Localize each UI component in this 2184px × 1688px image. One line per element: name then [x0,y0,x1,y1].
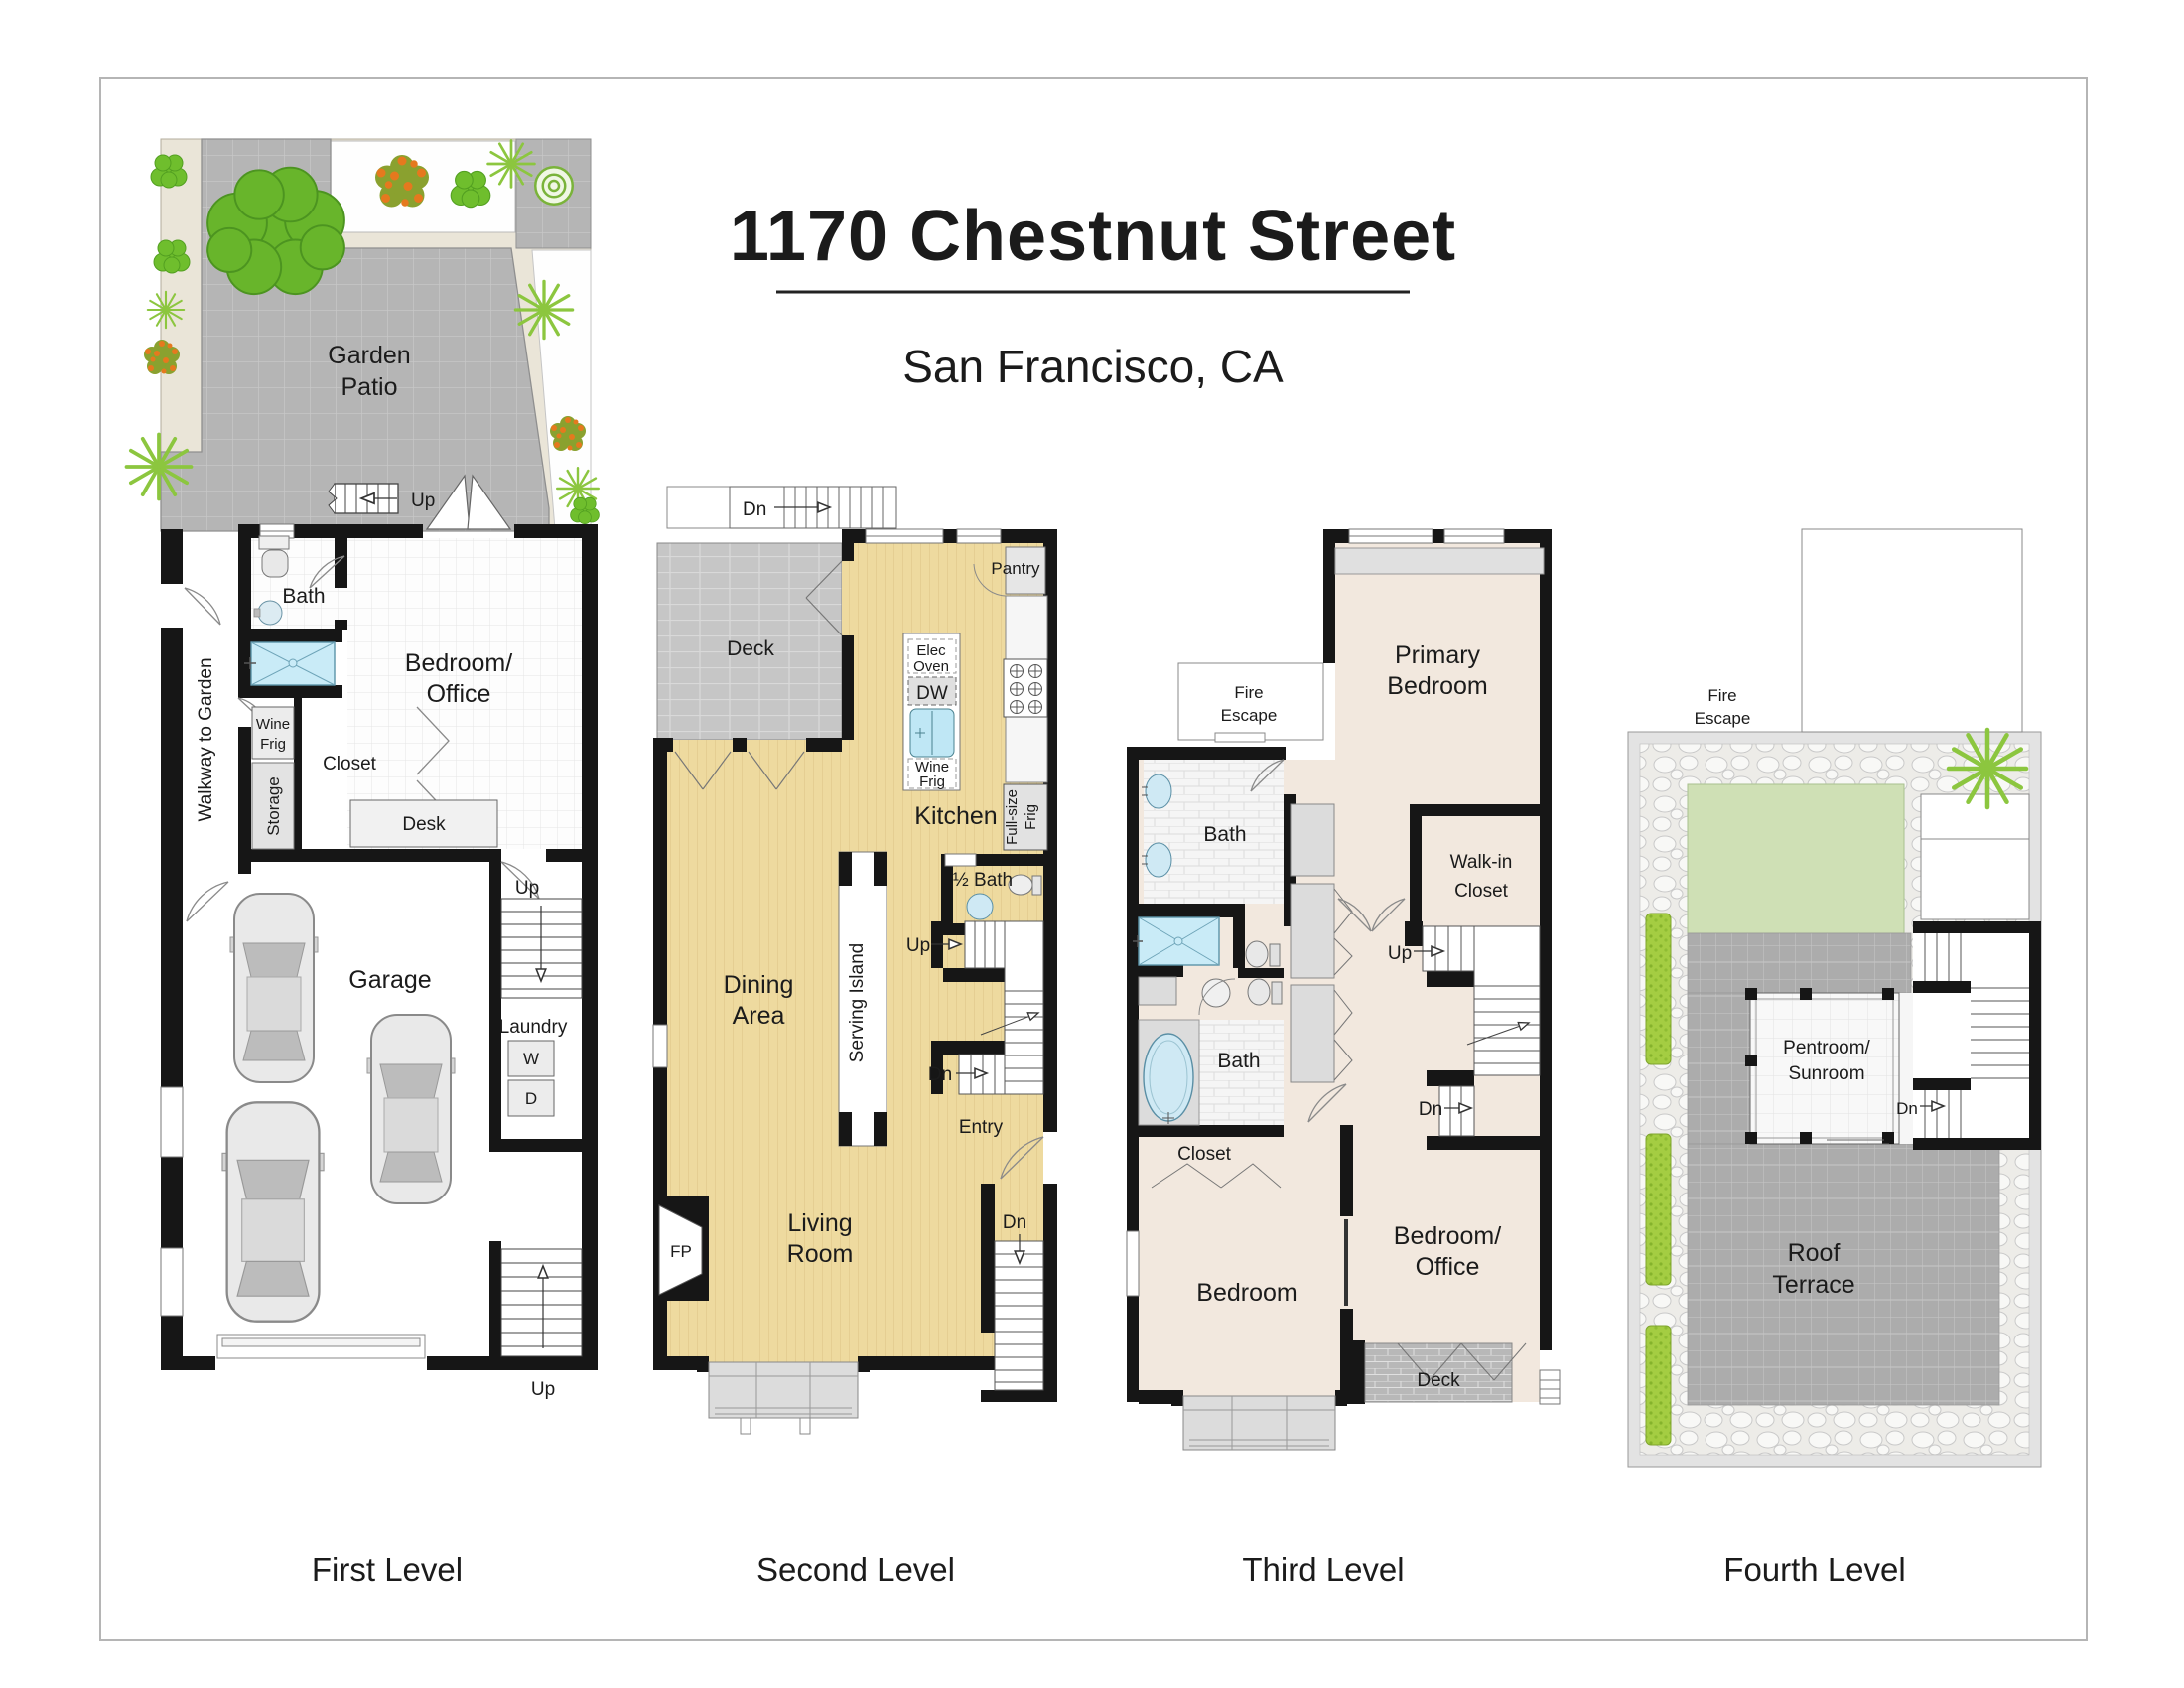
sink-icon [1146,774,1171,808]
walkway-label: Walkway to Garden [196,657,216,821]
fire-escape-label-2: Escape [1695,709,1751,728]
primary-label-2: Bedroom [1387,672,1487,700]
faucet-icon [254,609,260,617]
mid-dn-label: Dn [928,1064,952,1085]
bedroom-office-label-1: Bedroom/ [405,649,512,677]
closet-label: Closet [323,754,377,774]
garage-niche-1 [161,1087,183,1157]
third-level-plan: Fire Escape Primary [1127,529,1560,1450]
toilet-tank-icon [1032,876,1041,895]
pantry-label: Pantry [991,559,1040,578]
fp-label: FP [670,1242,692,1261]
toilet-icon [259,536,289,549]
third-up-label: Up [1388,943,1412,964]
bath-label: Bath [282,585,325,608]
roof-terrace-label-1: Roof [1788,1239,1841,1267]
entry-label: Entry [959,1117,1004,1138]
garage-niche-2 [161,1248,183,1316]
walkin-label-1: Walk-in [1450,852,1513,873]
living-label-2: Room [787,1240,854,1268]
mid-up-label: Up [906,935,930,956]
toilet-icon [1248,979,1270,1005]
floorplan-sheet: 1170 Chestnut Street San Francisco, CA [0,0,2184,1688]
deck-label: Deck [1417,1370,1460,1391]
pentroom-label-2: Sunroom [1788,1063,1864,1084]
lower-bath-label: Bath [1217,1050,1260,1072]
caption-first: First Level [312,1551,463,1588]
bottom-up-label: Up [531,1379,555,1400]
page-subtitle: San Francisco, CA [902,341,1284,392]
tub-bath [1139,1020,1199,1125]
sink-icon [258,601,282,625]
primary-label-1: Primary [1395,641,1481,669]
deck-label: Deck [727,637,774,660]
caption-fourth: Fourth Level [1723,1551,1905,1588]
fire-escape-label-2: Escape [1221,706,1278,725]
island-wine-label-2: Frig [919,774,945,790]
caption-second: Second Level [756,1551,955,1588]
living-window [653,1025,667,1067]
bedroom-office-label-2: Office [427,680,491,708]
bedoffice-label-1: Bedroom/ [1394,1222,1501,1250]
elec-oven-label-2: Oven [913,658,949,675]
garden-patio-label-1: Garden [328,342,410,369]
half-bath-label: ½ Bath [953,870,1013,891]
laundry-label: Laundry [499,1017,568,1038]
car-icon [367,1015,455,1203]
bedroom-niche [1127,1231,1139,1296]
dryer-label: D [525,1089,537,1108]
deck-dn-label: Dn [743,499,766,520]
kitchen-label: Kitchen [914,802,997,830]
garden-patio-label-2: Patio [341,373,398,401]
bedroom-label: Bedroom [1196,1279,1297,1307]
fullsize-frig-label-1: Full-size [1004,789,1021,845]
shower [244,642,335,685]
living-label-1: Living [787,1209,852,1237]
bush-icon [154,240,190,273]
hedge-icon [1646,914,1671,1064]
sink-icon [1146,843,1171,877]
bush-icon [571,497,600,523]
sink-icon [967,894,993,919]
fire-escape-fourth [1802,529,2022,732]
fire-escape-label-1: Fire [1234,683,1263,702]
toilet-bowl-icon [262,550,288,577]
bay-window-third [1183,1396,1335,1450]
fourth-dn-label: Dn [1896,1099,1918,1118]
page-title: 1170 Chestnut Street [730,197,1456,276]
roof-terrace-label-2: Terrace [1772,1271,1854,1299]
bedoffice-label-2: Office [1416,1253,1480,1281]
garage-label: Garage [348,966,431,994]
dining-label-1: Dining [724,971,794,999]
upper-bath-label: Bath [1203,823,1246,846]
bottom-stair [501,1249,582,1356]
hedge-icon [1646,1134,1671,1285]
second-level-plan: Dn Deck [653,487,1057,1434]
garage-door [217,1335,425,1358]
desk-label: Desk [402,814,446,835]
dining-label-2: Area [733,1002,785,1030]
fire-escape-label-1: Fire [1707,686,1736,705]
floorplan-canvas: 1170 Chestnut Street San Francisco, CA [0,0,2184,1688]
car-icon [222,1102,324,1321]
serving-island-label: Serving Island [847,943,868,1062]
stove-icon [1004,659,1047,717]
washer-label: W [523,1050,539,1068]
landing-boxes [1921,794,2029,919]
fire-escape-window [1215,733,1265,742]
mid-stair [501,899,582,998]
patio-up-label: Up [411,491,435,511]
dw-label: DW [916,683,948,704]
fourth-stair [1913,921,2041,1150]
rose-bush-icon [535,167,573,205]
first-level-plan: Garden Patio Up [127,139,600,1400]
toilet-icon [1246,941,1268,967]
mid-up-label: Up [515,878,539,899]
car-icon [230,894,318,1082]
walkin-label-2: Closet [1454,881,1509,902]
pentroom-label-1: Pentroom/ [1783,1038,1870,1058]
wine-frig-label-1: Wine [256,716,290,733]
elec-oven-label-1: Elec [916,642,946,659]
caption-third: Third Level [1242,1551,1404,1588]
bath-lower-floor [1199,1020,1284,1125]
entry-dn-label: Dn [1003,1212,1026,1233]
hedges [1646,914,1671,1445]
third-dn-label: Dn [1419,1099,1442,1120]
bush-icon [151,155,187,188]
storage-label: Storage [264,776,283,836]
closet-label: Closet [1177,1144,1232,1165]
exterior-stair [667,487,896,528]
wine-frig-label-2: Frig [260,736,286,753]
hedge-icon [1646,1326,1671,1445]
half-bath-door [945,854,976,866]
fullsize-frig-label-2: Frig [1023,804,1039,830]
entry-stair [995,1234,1043,1390]
patio-stair [329,484,398,513]
lawn [1688,784,1904,933]
bush-icon [451,171,490,207]
window-seat [1335,548,1544,574]
